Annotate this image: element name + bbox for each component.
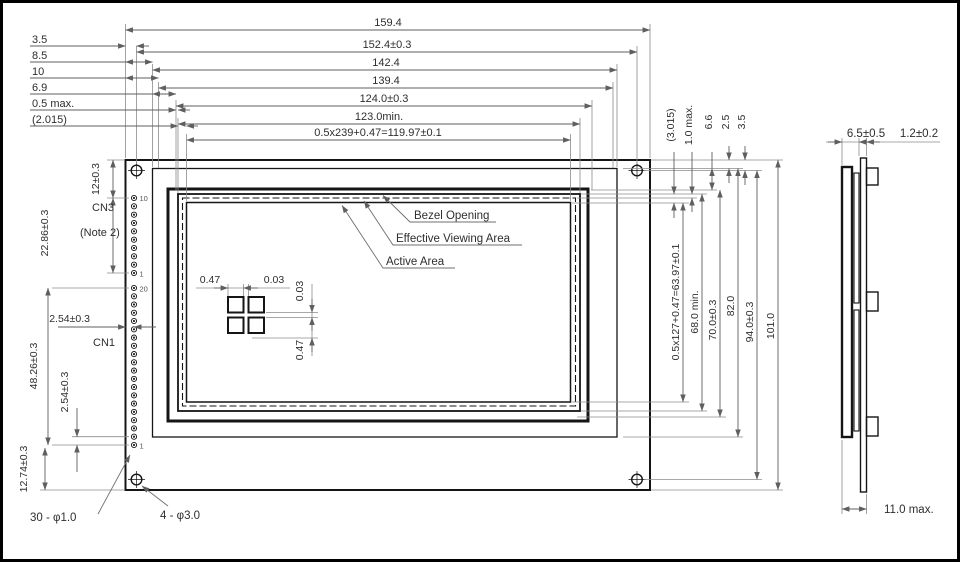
pixel-v-pitch-label: 0.47	[294, 340, 306, 361]
dim-edge-to-hole: 3.5	[32, 34, 47, 46]
cn1-label: CN1	[93, 337, 115, 349]
drawing-svg: 10 1 20 1 159.4 152.4±0.3 142.4 139.4 12…	[3, 3, 957, 559]
cn3-pins	[131, 195, 136, 275]
dim-cn1-span: 48.26±0.3	[28, 343, 40, 390]
pcb-outline	[126, 160, 651, 490]
cn1-pin-number-bottom: 1	[140, 442, 144, 451]
side-tab-top	[867, 168, 879, 185]
dim-hole-spacing-x: 152.4±0.3	[363, 39, 412, 51]
pixel-detail: 0.47 0.03 0.03 0.47	[196, 274, 318, 360]
dim-pcb-thickness: 1.2±0.2	[900, 128, 938, 140]
effective-viewing-area-outline	[183, 198, 576, 406]
dim-bezel-opening-height: 68.0 min.	[689, 290, 701, 333]
mount-holes-label: 4 - φ3.0	[160, 510, 200, 522]
side-tab-middle	[867, 292, 879, 311]
dim-pin-x-offset: 2.54±0.3	[49, 313, 90, 325]
bezel-recess-outline	[153, 169, 618, 438]
side-view: 6.5±0.5 1.2±0.2 11.0 max.	[826, 128, 940, 516]
dim-edge-offset-10: 10	[32, 66, 44, 78]
pixel-v-gap-label: 0.03	[294, 281, 306, 302]
bezel-frame-outline	[168, 189, 588, 421]
pixel-squares	[228, 297, 264, 333]
side-bezel-profile	[842, 167, 852, 437]
dim-offset-2-5: 2.5	[720, 115, 732, 130]
area-annotations: Bezel Opening Effective Viewing Area Act…	[342, 196, 522, 269]
cn3-pin-number-top: 10	[140, 194, 148, 203]
dim-offset-6-6: 6.6	[703, 115, 715, 130]
dim-cn3-top-offset: 12±0.3	[90, 163, 102, 195]
side-tab-bottom	[867, 417, 879, 436]
dim-pin-pitch: 2.54±0.3	[59, 371, 71, 412]
dim-total-thickness: 11.0 max.	[884, 504, 934, 516]
effective-viewing-area-label: Effective Viewing Area	[396, 233, 511, 245]
front-view-outline	[126, 160, 651, 490]
dim-offset-3-5: 3.5	[736, 115, 748, 130]
dim-edge-to-recess: 8.5	[32, 50, 47, 62]
pixel-h-gap-label: 0.03	[264, 274, 285, 286]
connector-pins: 10 1 20 1	[131, 194, 147, 451]
dim-glass-height: 70.0±0.3	[707, 299, 719, 340]
dim-glass-width: 124.0±0.3	[360, 93, 409, 105]
dim-offset-2-015: (2.015)	[32, 114, 67, 126]
pixel-h-pitch-label: 0.47	[200, 274, 221, 286]
dim-active-area-width: 0.5x239+0.47=119.97±0.1	[314, 127, 442, 139]
dim-recess-width: 142.4	[372, 57, 400, 69]
cn3-note-label: (Note 2)	[80, 227, 120, 239]
side-glass-upper	[854, 173, 859, 303]
cn3-pin-number-bottom: 1	[140, 270, 144, 279]
dim-bezel-opening-width: 123.0min.	[355, 111, 403, 123]
active-area-label: Active Area	[386, 256, 445, 268]
connector-extension-lines	[40, 160, 129, 490]
cn1-pin-number-top: 20	[140, 285, 148, 294]
dim-front-thickness: 6.5±0.5	[847, 128, 885, 140]
dim-offset-0-5-max: 0.5 max.	[32, 98, 74, 110]
left-offset-dimensions: 3.5 8.5 10 6.9 0.5 max. (2.015)	[30, 34, 198, 126]
right-dimensions: (3.015) 1.0 max. 6.6 2.5 3.5 0.5x127+0.4…	[572, 105, 783, 490]
dim-139-width: 139.4	[372, 75, 400, 87]
dim-total-width: 159.4	[374, 17, 402, 29]
dim-offset-1-0-max: 1.0 max.	[683, 105, 695, 145]
side-pcb-profile	[861, 158, 867, 492]
dim-offset-3-015: (3.015)	[665, 108, 677, 141]
cn3-label: CN3	[92, 202, 114, 214]
top-dimensions: 159.4 152.4±0.3 142.4 139.4 124.0±0.3 12…	[126, 17, 651, 201]
dim-offset-6-9: 6.9	[32, 82, 47, 94]
dim-cn3-span: 22.86±0.3	[39, 210, 51, 257]
dim-active-area-height: 0.5x127+0.47=63.97±0.1	[670, 243, 682, 360]
mounting-holes	[128, 162, 646, 488]
lcd-module-dimension-drawing: 10 1 20 1 159.4 152.4±0.3 142.4 139.4 12…	[0, 0, 960, 562]
pin-holes-label: 30 - φ1.0	[30, 512, 76, 524]
bezel-opening-outline	[178, 194, 580, 411]
cn1-pins	[131, 285, 136, 447]
dim-bottom-pin-offset: 12.74±0.3	[18, 446, 30, 493]
side-glass-lower	[854, 310, 859, 431]
dim-recess-height: 82.0	[725, 296, 737, 317]
bezel-opening-label: Bezel Opening	[414, 210, 489, 222]
dim-total-height: 101.0	[765, 313, 777, 339]
dim-hole-spacing-y: 94.0±0.3	[744, 301, 756, 342]
